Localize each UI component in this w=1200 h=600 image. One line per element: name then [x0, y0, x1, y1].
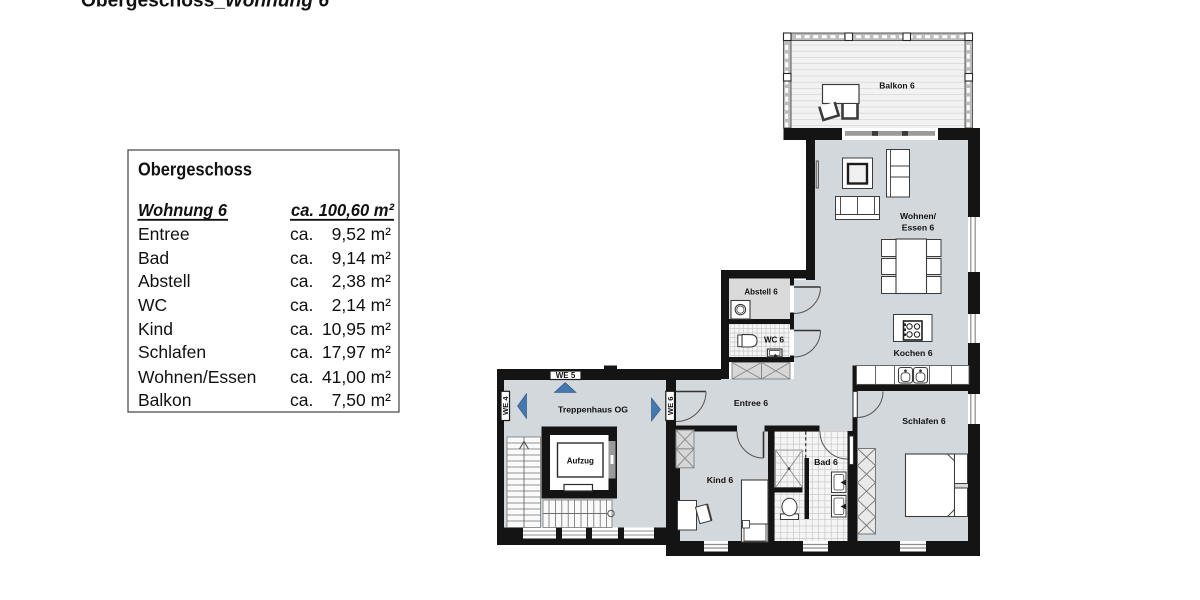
svg-text:Kind 6: Kind 6	[707, 475, 734, 485]
svg-text:9,14 m²: 9,14 m²	[332, 248, 391, 268]
svg-text:ca.: ca.	[290, 271, 313, 291]
svg-text:17,97 m²: 17,97 m²	[322, 342, 391, 362]
svg-text:WE 4: WE 4	[501, 396, 510, 415]
svg-text:ca.: ca.	[290, 390, 313, 410]
svg-text:ca.: ca.	[290, 248, 313, 268]
svg-text:Obergeschoss: Obergeschoss	[138, 160, 252, 180]
svg-text:ca.: ca.	[290, 224, 313, 244]
svg-text:WE 5: WE 5	[556, 371, 576, 380]
svg-text:WC 6: WC 6	[764, 336, 785, 345]
svg-text:10,95 m²: 10,95 m²	[322, 319, 391, 339]
svg-text:Aufzug: Aufzug	[567, 457, 594, 466]
svg-text:WC: WC	[138, 295, 167, 315]
svg-text:Wohnen/: Wohnen/	[900, 211, 937, 221]
svg-text:Wohnen/Essen: Wohnen/Essen	[138, 367, 256, 387]
svg-text:Bad: Bad	[138, 248, 169, 268]
svg-text:ca.: ca.	[290, 342, 313, 362]
svg-text:WE 6: WE 6	[666, 397, 675, 416]
svg-text:Schlafen: Schlafen	[138, 342, 206, 362]
svg-text:Wohnung 6: Wohnung 6	[138, 200, 227, 220]
svg-text:2,38 m²: 2,38 m²	[332, 271, 391, 291]
svg-text:7,50 m²: 7,50 m²	[332, 390, 391, 410]
svg-text:Obergeschoss_Wohnung 6: Obergeschoss_Wohnung 6	[81, 0, 329, 12]
svg-text:Entree: Entree	[138, 224, 190, 244]
svg-text:41,00 m²: 41,00 m²	[322, 367, 391, 387]
svg-text:Abstell: Abstell	[138, 271, 191, 291]
svg-text:Bad 6: Bad 6	[814, 457, 838, 467]
svg-text:Balkon: Balkon	[138, 390, 192, 410]
svg-text:Abstell 6: Abstell 6	[744, 288, 778, 297]
svg-text:Schlafen 6: Schlafen 6	[902, 416, 946, 426]
svg-text:Entree 6: Entree 6	[734, 398, 768, 408]
svg-text:ca.: ca.	[290, 319, 313, 339]
svg-text:Kochen 6: Kochen 6	[893, 348, 932, 358]
svg-text:Essen 6: Essen 6	[902, 223, 935, 233]
svg-text:9,52 m²: 9,52 m²	[332, 224, 391, 244]
svg-text:ca.: ca.	[290, 295, 313, 315]
svg-text:Balkon 6: Balkon 6	[879, 81, 915, 91]
svg-text:Treppenhaus OG: Treppenhaus OG	[558, 405, 628, 415]
svg-text:ca. 100,60 m²: ca. 100,60 m²	[291, 200, 395, 220]
svg-text:2,14 m²: 2,14 m²	[332, 295, 391, 315]
svg-text:ca.: ca.	[290, 367, 313, 387]
svg-text:Kind: Kind	[138, 319, 173, 339]
